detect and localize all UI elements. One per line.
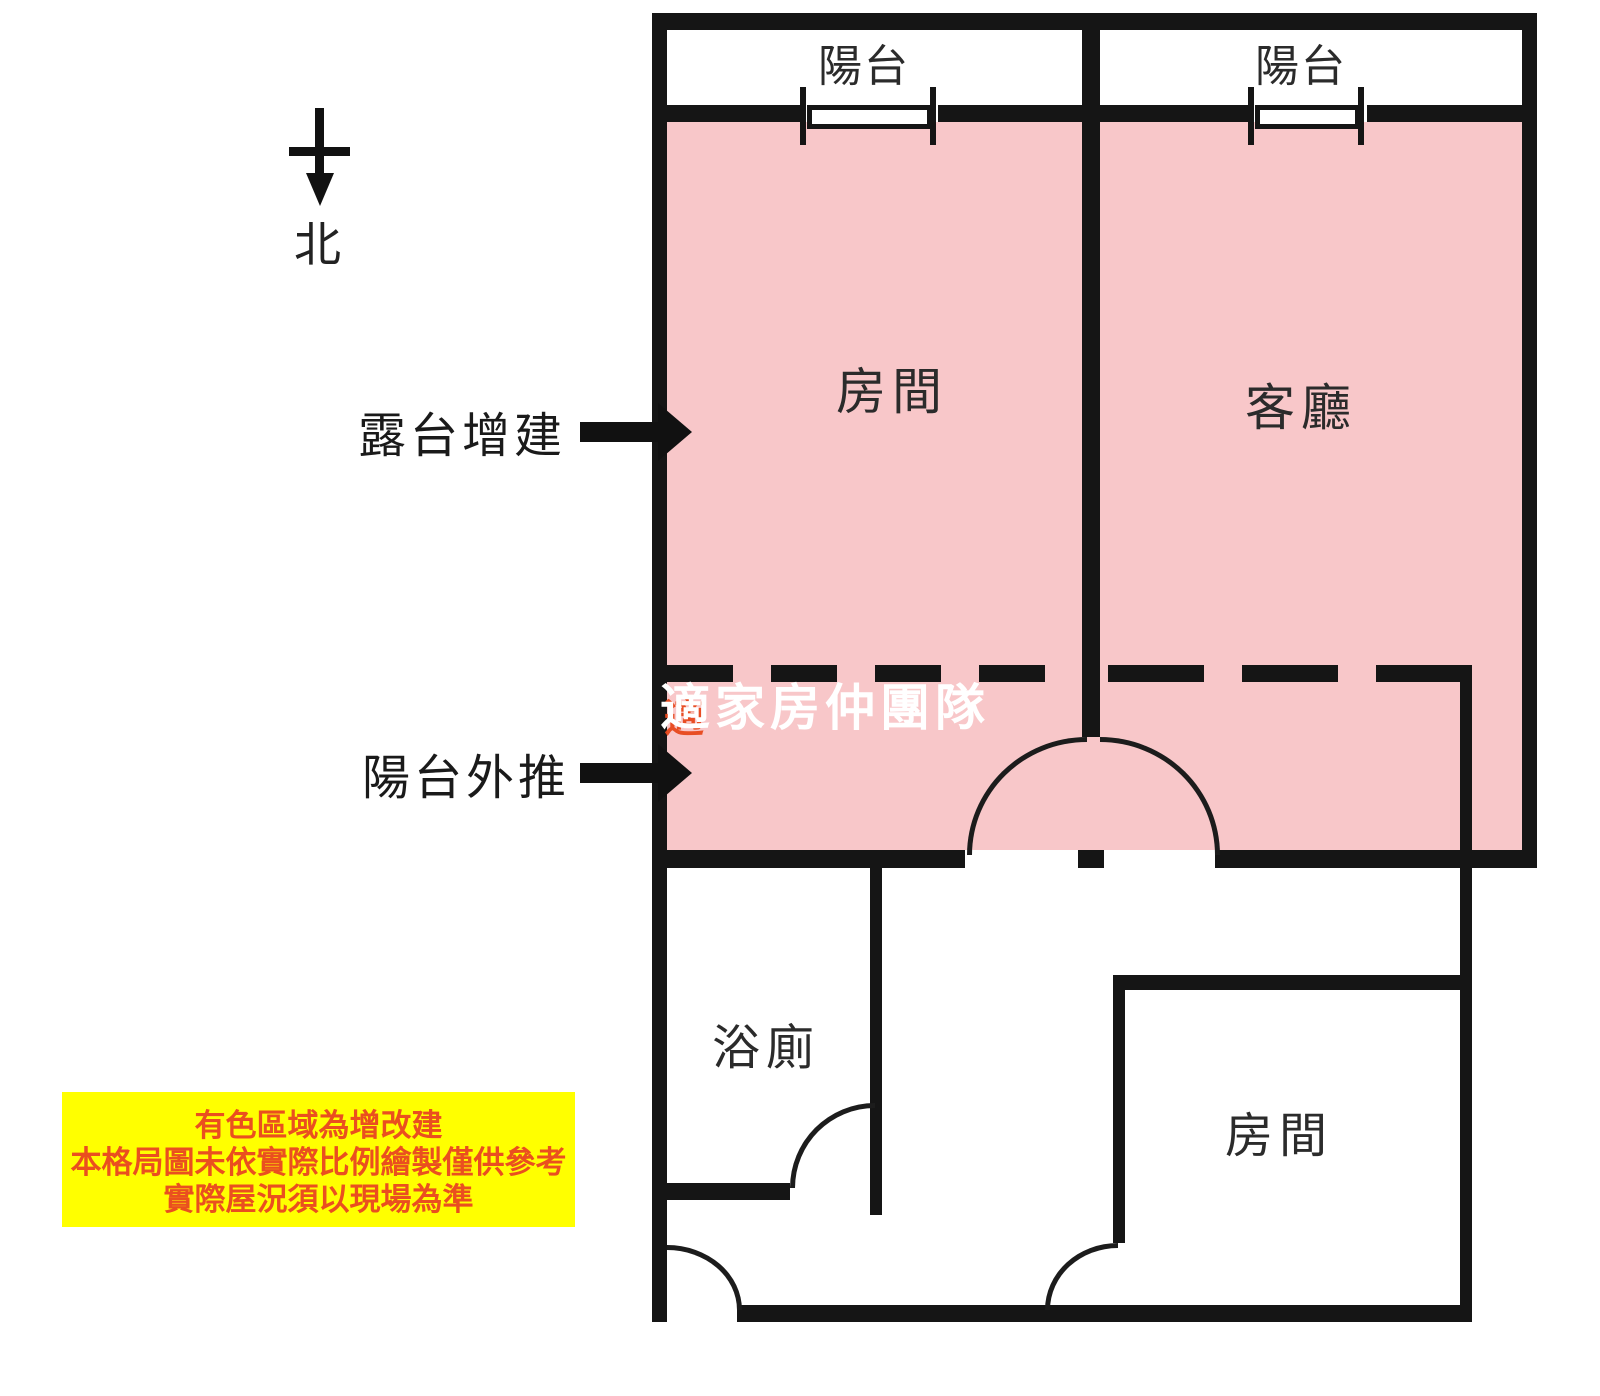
window-tick xyxy=(800,87,806,145)
terrace-arrow-bar xyxy=(580,422,658,442)
wall-balcony-seg2 xyxy=(938,105,1082,122)
north-arrow-head-icon xyxy=(306,173,334,206)
label-balcony-right: 陽台 xyxy=(1255,30,1347,94)
wall-central xyxy=(1082,105,1100,737)
wall-pink-bottom-left xyxy=(652,850,965,868)
entry-door-arc xyxy=(667,1245,742,1310)
window-icon-left xyxy=(807,105,932,129)
label-bedroom-top: 房間 xyxy=(836,352,948,424)
wall-balcony-seg4 xyxy=(1367,105,1537,122)
wall-bathroom-bottom xyxy=(667,1183,790,1200)
north-arrow-shaft xyxy=(315,108,324,178)
pushout-arrow-head-icon xyxy=(658,744,692,802)
window-tick xyxy=(1358,87,1364,145)
disclaimer-line-2: 本格局圖未依實際比例繪製僅供參考 xyxy=(62,1145,575,1182)
north-label: 北 xyxy=(294,206,341,275)
label-terrace-addition: 露台增建 xyxy=(358,396,566,466)
floorplan-canvas: 陽台 陽台 房間 客廳 浴廁 房間 北 露台增建 陽台外推 適 適家房仲團隊 有… xyxy=(0,0,1600,1396)
label-living-room: 客廳 xyxy=(1245,368,1357,440)
bedroom2-door-arc xyxy=(1045,1243,1118,1310)
wall-outer-right-upper xyxy=(1522,13,1537,868)
wall-outer-right-lower xyxy=(1460,665,1472,1322)
label-balcony-pushout: 陽台外推 xyxy=(362,738,570,808)
wall-balcony-seg1 xyxy=(652,105,800,122)
label-bedroom-bottom: 房間 xyxy=(1225,1096,1333,1166)
disclaimer-line-3: 實際屋況須以現場為準 xyxy=(62,1182,575,1219)
label-balcony-left: 陽台 xyxy=(818,30,910,94)
window-tick xyxy=(930,87,936,145)
label-bathroom: 浴廁 xyxy=(712,1008,820,1078)
window-tick xyxy=(1248,87,1254,145)
disclaimer-line-1: 有色區域為增改建 xyxy=(62,1108,575,1145)
terrace-arrow-head-icon xyxy=(658,403,692,461)
pushout-arrow-bar xyxy=(580,763,658,783)
wall-pink-bottom-right xyxy=(1215,850,1537,868)
dashed-line-right xyxy=(1100,665,1472,682)
disclaimer-box: 有色區域為增改建 本格局圖未依實際比例繪製僅供參考 實際屋況須以現場為準 xyxy=(62,1092,575,1227)
window-icon-right xyxy=(1255,105,1360,129)
wall-bedroom2-top xyxy=(1113,975,1472,990)
north-arrow-crossbar xyxy=(289,147,350,156)
bathroom-door-arc xyxy=(790,1103,875,1188)
wall-balcony-seg3 xyxy=(1100,105,1248,122)
wall-bedroom2-left xyxy=(1113,975,1125,1243)
watermark-text: 適家房仲團隊 xyxy=(660,668,990,740)
